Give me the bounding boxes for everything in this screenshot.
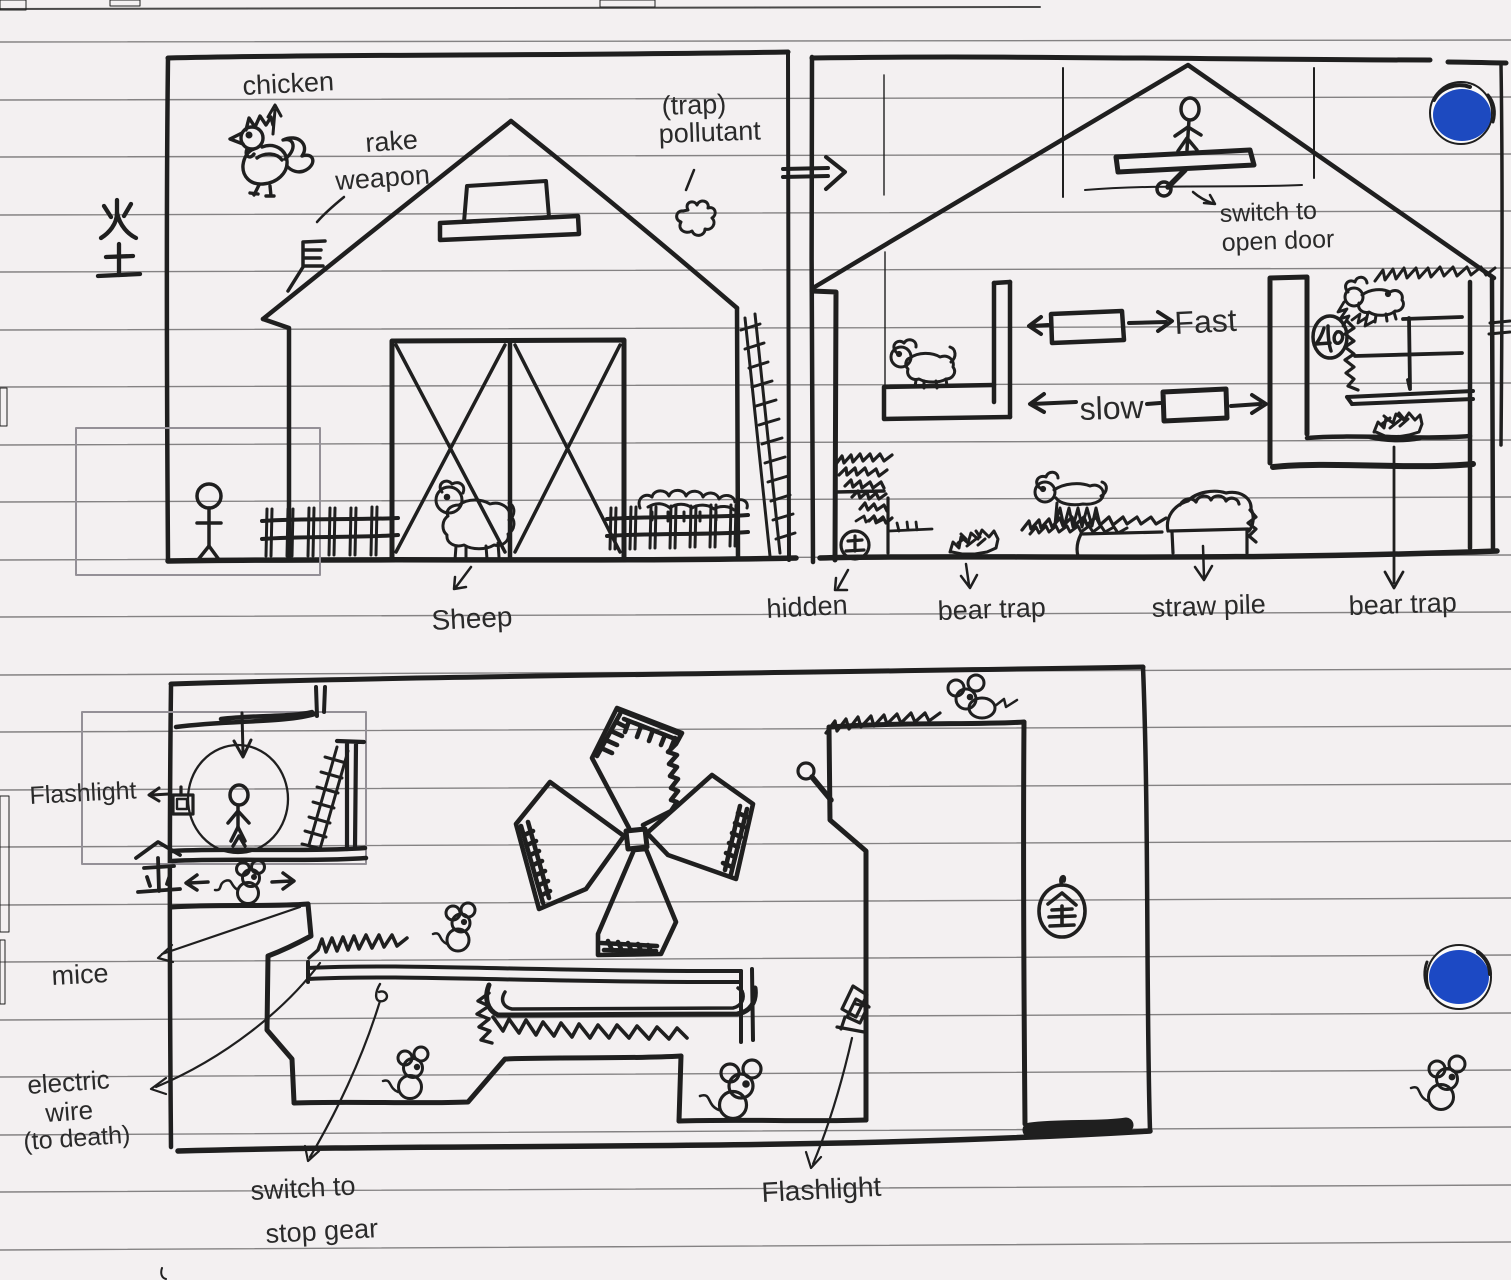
- svg-text:slow: slow: [1079, 389, 1145, 427]
- svg-text:switch to: switch to: [250, 1171, 356, 1206]
- svg-text:Sheep: Sheep: [431, 601, 513, 636]
- svg-text:bear trap: bear trap: [937, 592, 1046, 626]
- svg-text:hidden: hidden: [766, 590, 849, 624]
- svg-text:chicken: chicken: [242, 66, 335, 101]
- svg-text:straw pile: straw pile: [1151, 589, 1266, 623]
- svg-text:stop gear: stop gear: [265, 1213, 379, 1249]
- svg-text:open door: open door: [1221, 225, 1335, 257]
- svg-text:Fast: Fast: [1173, 302, 1237, 341]
- svg-text:mice: mice: [51, 958, 110, 991]
- svg-text:bear trap: bear trap: [1348, 587, 1457, 621]
- svg-text:Flashlight: Flashlight: [29, 776, 137, 810]
- svg-text:rake: rake: [364, 124, 418, 158]
- svg-text:electric: electric: [26, 1064, 110, 1100]
- svg-text:Flashlight: Flashlight: [761, 1171, 883, 1208]
- svg-text:switch to: switch to: [1219, 197, 1317, 228]
- svg-text:pollutant: pollutant: [658, 115, 762, 149]
